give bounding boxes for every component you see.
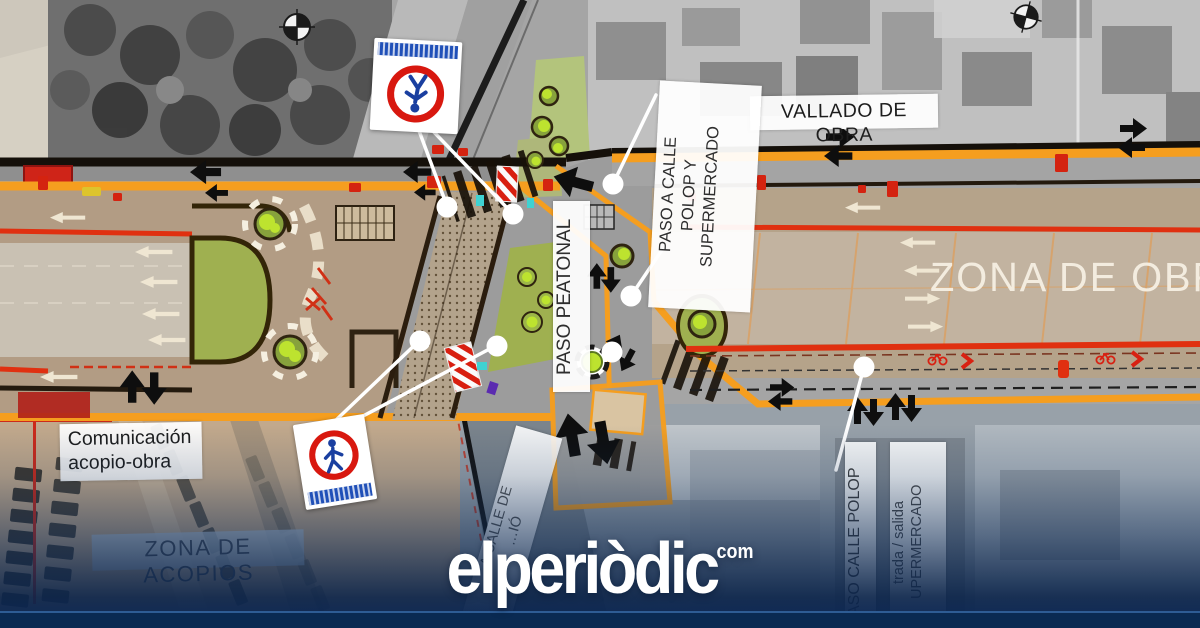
site-logo: elperiòdic com — [446, 533, 753, 605]
prohibition-roundel-icon — [304, 423, 364, 486]
construction-plan-graphic: VALLADO DE OBRA PASO A CALLE POLOP Y SUP… — [0, 0, 1200, 628]
label-paso-a-calle-polop: PASO A CALLE POLOP Y SUPERMERCADO — [648, 80, 762, 312]
label-vallado-de-obra: VALLADO DE OBRA — [750, 94, 938, 131]
site-logo-suffix: com — [717, 541, 754, 564]
aerial-photo-top — [0, 0, 1200, 162]
prohibition-roundel-icon — [384, 60, 447, 127]
label-paso-peatonal: PASO PEATONAL — [553, 201, 590, 392]
pedestrian-sign-icon — [293, 414, 378, 510]
site-logo-text: elperiòdic — [446, 533, 716, 605]
sign-text-strip — [378, 42, 459, 59]
footer-bar — [0, 611, 1200, 628]
label-zona-de-obra: ZONA DE OBRA — [930, 254, 1200, 301]
no-pedestrians-sign-icon — [370, 38, 463, 134]
median-green — [192, 238, 270, 362]
